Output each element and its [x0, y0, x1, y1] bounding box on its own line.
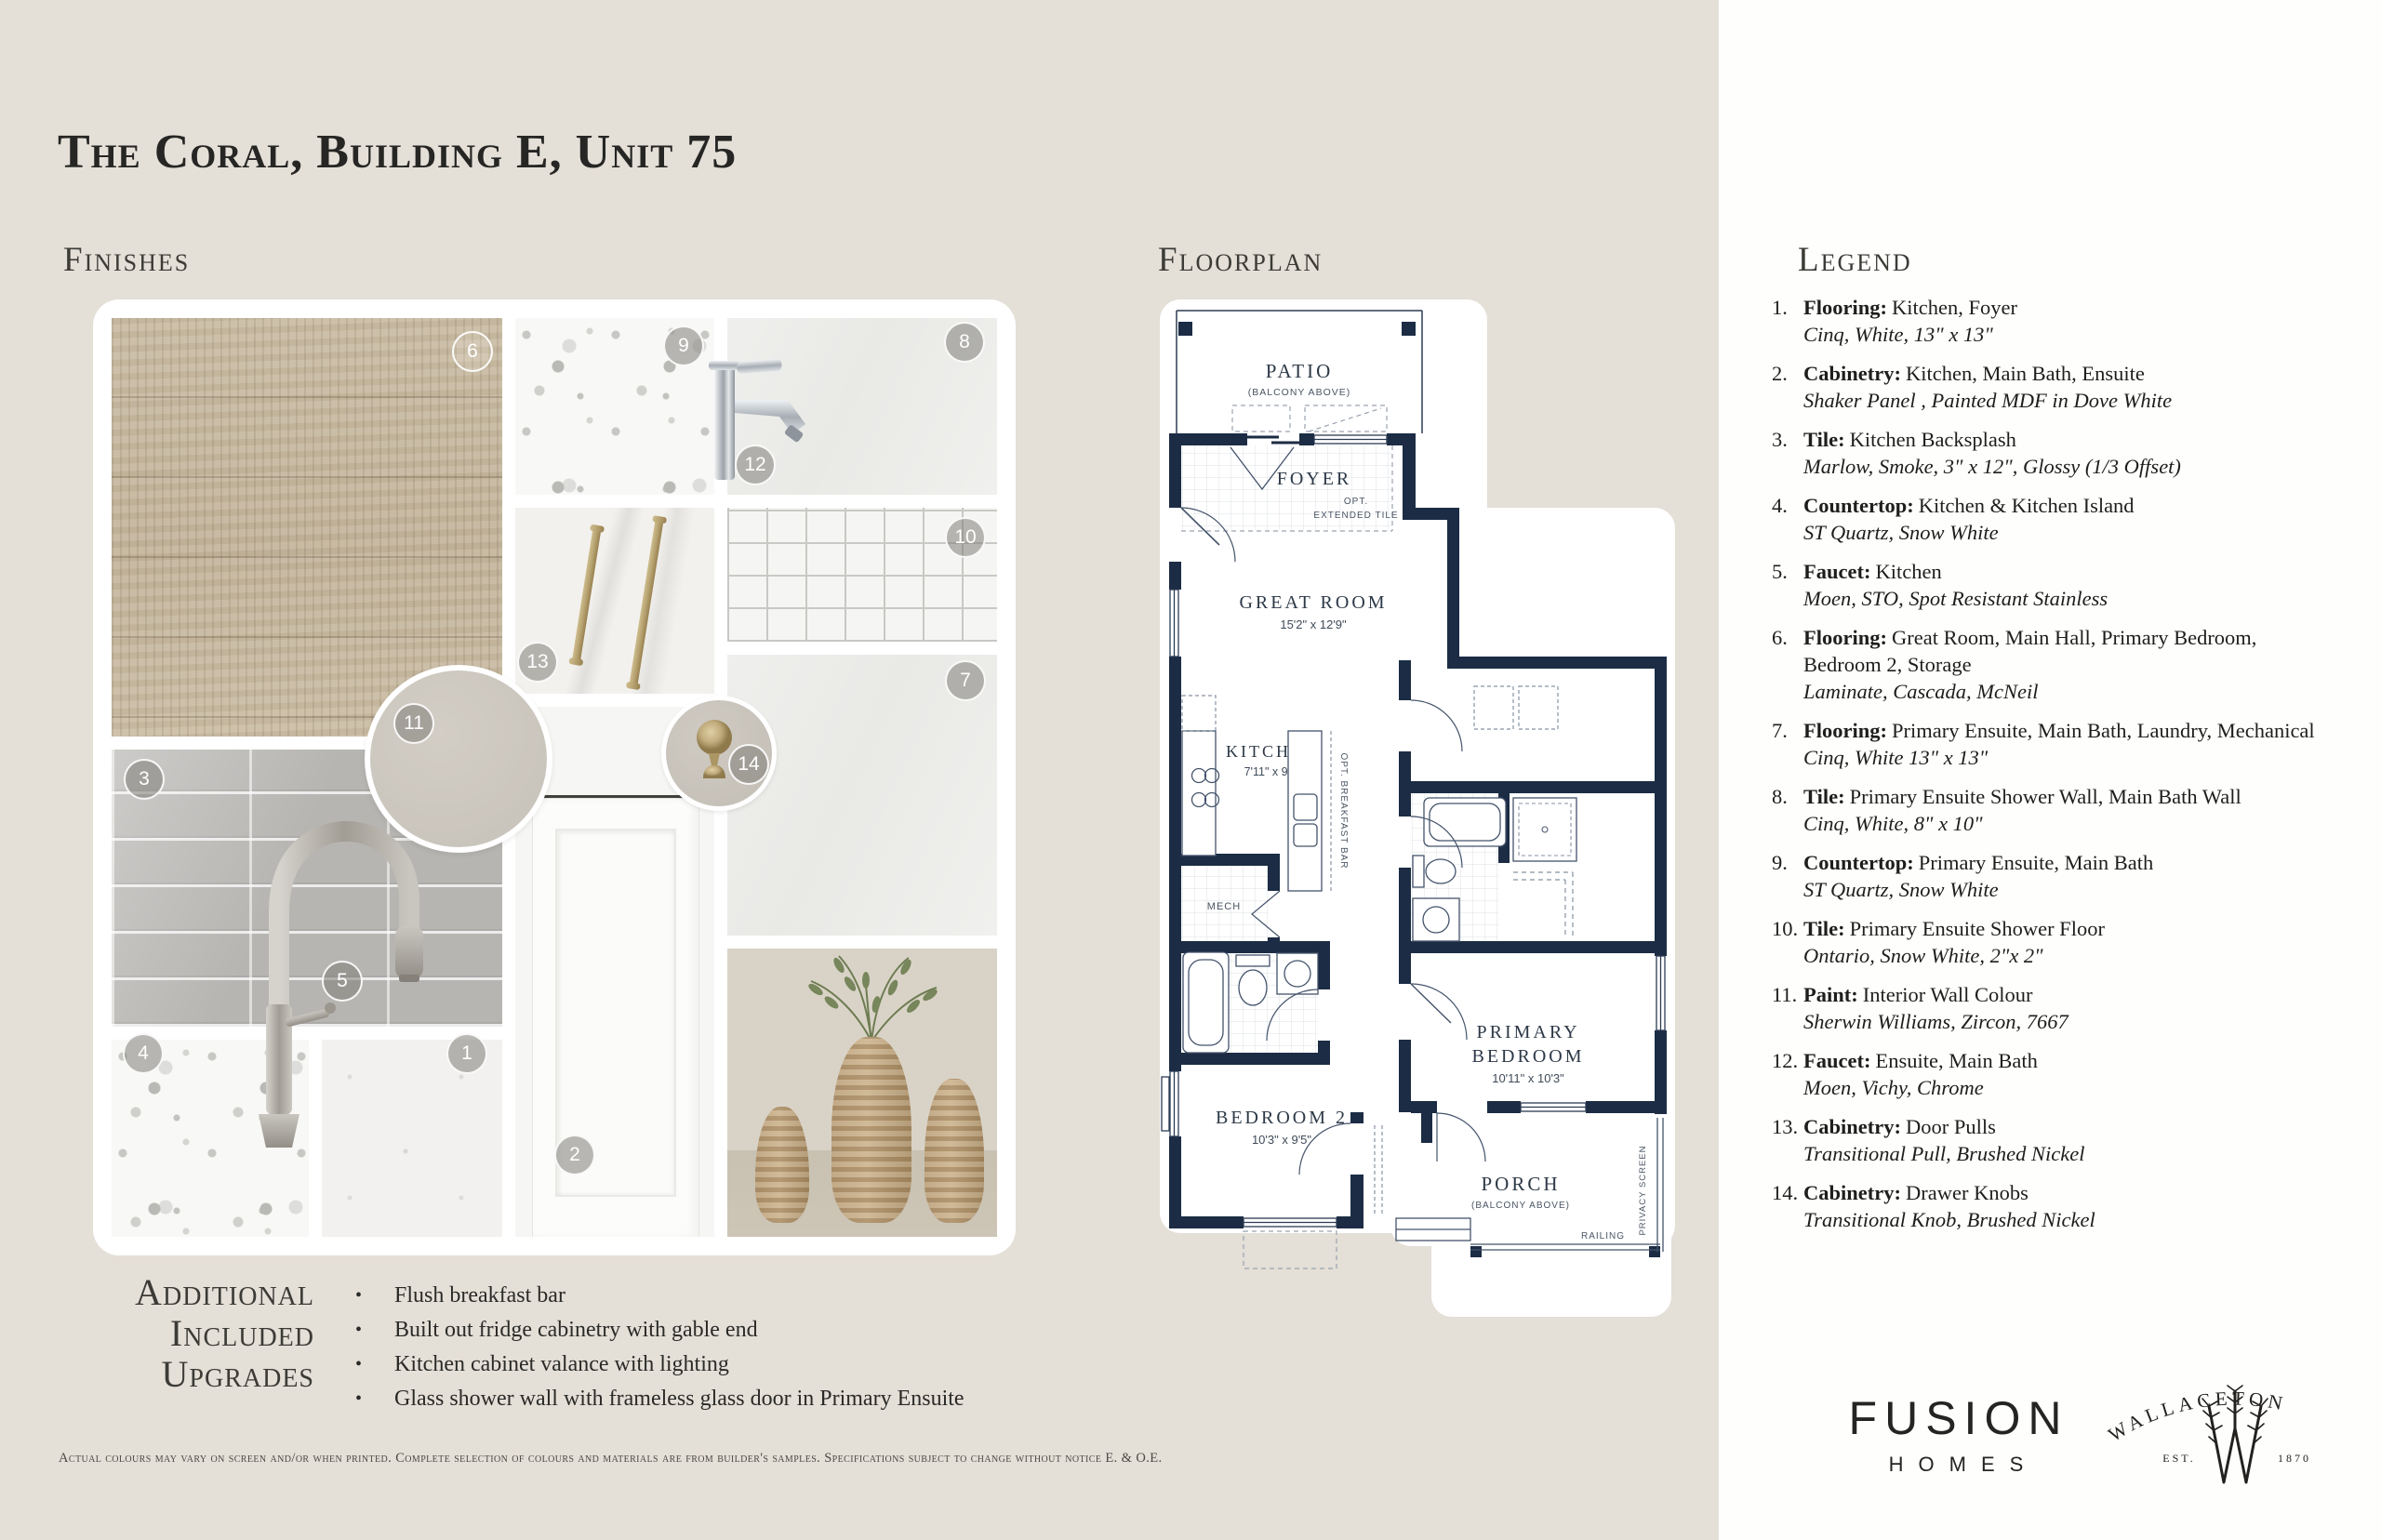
legend-text: Door Pulls	[1906, 1115, 1996, 1138]
legend-spec: Transitional Knob, Brushed Nickel	[1803, 1206, 2339, 1233]
vase-medium	[924, 1079, 984, 1223]
opt-tile-label2: EXTENDED TILE	[1313, 511, 1398, 521]
legend-label: Tile:	[1803, 917, 1845, 940]
legend-item: 7.Flooring:Primary Ensuite, Main Bath, L…	[1772, 717, 2339, 771]
porch-sublabel: (BALCONY ABOVE)	[1471, 1201, 1570, 1211]
legend-text: Kitchen, Main Bath, Ensuite	[1906, 362, 2145, 385]
primary-bedroom-label2: BEDROOM	[1471, 1046, 1584, 1067]
legend-spec: Sherwin Williams, Zircon, 7667	[1803, 1008, 2339, 1035]
legend-text: Drawer Knobs	[1906, 1181, 2029, 1204]
legend-spec: Cinq, White, 13" x 13"	[1803, 321, 2339, 348]
badge-number: 13	[526, 651, 548, 673]
legend-label: Flooring:	[1803, 626, 1887, 649]
wallaceton-logo: WALLACETON EST. 1870	[2097, 1332, 2372, 1504]
breakfast-bar-label: OPT. BREAKFAST BAR	[1338, 752, 1349, 869]
upgrades-heading-line: Included	[56, 1313, 314, 1354]
legend-item: 2.Cabinetry:Kitchen, Main Bath, EnsuiteS…	[1772, 360, 2339, 414]
legend-item: 4.Countertop:Kitchen & Kitchen IslandST …	[1772, 492, 2339, 546]
decor-vases-photo	[727, 949, 997, 1237]
finish-badge-icon: 8	[944, 322, 985, 363]
legend-number: 8.	[1772, 783, 1803, 837]
upgrade-item: •Kitchen cabinet valance with lighting	[355, 1350, 1006, 1378]
badge-number: 5	[337, 970, 348, 992]
badge-number: 3	[139, 768, 150, 790]
legend-spec: Ontario, Snow White, 2"x 2"	[1803, 942, 2339, 969]
page-title: The Coral, Building E, Unit 75	[58, 125, 737, 179]
legend-heading: Legend	[1798, 240, 1912, 280]
legend-spec: Transitional Pull, Brushed Nickel	[1803, 1140, 2339, 1167]
upgrades-heading-line: Additional	[56, 1272, 314, 1313]
primary-bedroom-label1: PRIMARY	[1476, 1022, 1579, 1042]
bullet-icon: •	[355, 1281, 394, 1309]
legend-item: 10.Tile:Primary Ensuite Shower FloorOnta…	[1772, 915, 2339, 969]
finish-badge-icon: 9	[663, 325, 704, 366]
finish-badge-icon: 13	[517, 642, 558, 683]
finishes-heading: Finishes	[63, 240, 190, 280]
legend-text: Kitchen	[1875, 560, 1941, 583]
legend-number: 10.	[1772, 915, 1803, 969]
finish-badge-icon: 12	[735, 445, 776, 485]
upgrades-heading-line: Upgrades	[56, 1354, 314, 1395]
legend-text: Interior Wall Colour	[1863, 983, 2033, 1006]
legend-number: 1.	[1772, 294, 1803, 348]
legend-text: Primary Ensuite Shower Floor	[1850, 917, 2105, 940]
legend-text: Kitchen & Kitchen Island	[1919, 494, 2135, 517]
legend-item: 11.Paint:Interior Wall ColourSherwin Wil…	[1772, 981, 2339, 1035]
legend-item: 6.Flooring:Great Room, Main Hall, Primar…	[1772, 624, 2339, 705]
upgrade-text: Glass shower wall with frameless glass d…	[394, 1385, 964, 1413]
legend-item: 5.Faucet:KitchenMoen, STO, Spot Resistan…	[1772, 558, 2339, 612]
badge-number: 14	[738, 753, 759, 776]
legend-label: Paint:	[1803, 983, 1858, 1006]
upgrade-text: Flush breakfast bar	[394, 1281, 565, 1309]
finish-badge-icon: 2	[554, 1135, 595, 1175]
bedroom2-label: BEDROOM 2	[1216, 1108, 1348, 1128]
legend-text: Primary Ensuite, Main Bath	[1919, 851, 2153, 874]
upgrade-item: •Built out fridge cabinetry with gable e…	[355, 1316, 1006, 1344]
legend-number: 5.	[1772, 558, 1803, 612]
finish-badge-icon: 5	[322, 961, 363, 1002]
badge-number: 6	[467, 340, 478, 363]
legend-item: 14.Cabinetry:Drawer KnobsTransitional Kn…	[1772, 1179, 2339, 1233]
legend-spec: ST Quartz, Snow White	[1803, 519, 2339, 546]
badge-number: 2	[569, 1144, 580, 1166]
bullet-icon: •	[355, 1316, 394, 1344]
legend-text: Kitchen Backsplash	[1850, 428, 2016, 451]
upgrades-list: •Flush breakfast bar •Built out fridge c…	[355, 1281, 1006, 1419]
upgrade-item: •Glass shower wall with frameless glass …	[355, 1385, 1006, 1413]
legend-label: Flooring:	[1803, 719, 1887, 742]
finish-badge-icon: 14	[728, 744, 769, 785]
legend-spec: ST Quartz, Snow White	[1803, 876, 2339, 903]
bullet-icon: •	[355, 1350, 394, 1378]
fusion-wordmark: FUSION	[1840, 1391, 2078, 1445]
legend-number: 9.	[1772, 849, 1803, 903]
legend-label: Cabinetry:	[1803, 362, 1901, 385]
floorplan-drawing: PATIO (BALCONY ABOVE)	[1158, 296, 1688, 1319]
upgrades-heading: Additional Included Upgrades	[56, 1272, 314, 1395]
legend-label: Faucet:	[1803, 560, 1870, 583]
foyer-label: FOYER	[1277, 469, 1352, 489]
legend-text: Primary Ensuite Shower Wall, Main Bath W…	[1850, 785, 2241, 808]
finish-badge-icon: 1	[446, 1033, 487, 1074]
legend-item: 8.Tile:Primary Ensuite Shower Wall, Main…	[1772, 783, 2339, 837]
shaker-door	[532, 798, 699, 1237]
badge-number: 7	[960, 670, 971, 692]
bedroom2-dim: 10'3" x 9'5"	[1252, 1133, 1311, 1147]
upgrade-item: •Flush breakfast bar	[355, 1281, 1006, 1309]
opt-tile-label1: OPT.	[1344, 497, 1368, 507]
bullet-icon: •	[355, 1385, 394, 1413]
legend-label: Tile:	[1803, 785, 1845, 808]
legend-spec: Laminate, Cascada, McNeil	[1803, 678, 2339, 705]
legend-text: Kitchen, Foyer	[1892, 296, 2017, 319]
badge-number: 11	[404, 712, 424, 735]
legend-spec: Cinq, White 13" x 13"	[1803, 744, 2339, 771]
legend-item: 3.Tile:Kitchen BacksplashMarlow, Smoke, …	[1772, 426, 2339, 480]
finish-badge-icon: 7	[945, 660, 986, 701]
legend-label: Faucet:	[1803, 1049, 1870, 1072]
finish-badge-icon: 3	[124, 759, 165, 800]
legend-number: 4.	[1772, 492, 1803, 546]
legend-spec: Cinq, White, 8" x 10"	[1803, 810, 2339, 837]
floorplan-heading: Floorplan	[1158, 240, 1323, 280]
badge-number: 4	[138, 1042, 149, 1065]
finish-badge-icon: 6	[452, 331, 493, 372]
legend-label: Cabinetry:	[1803, 1181, 1901, 1204]
privacy-screen-label: PRIVACY SCREEN	[1638, 1145, 1648, 1235]
legend-number: 3.	[1772, 426, 1803, 480]
legend-number: 6.	[1772, 624, 1803, 705]
legend-text: Ensuite, Main Bath	[1875, 1049, 2037, 1072]
porch-label: PORCH	[1481, 1173, 1560, 1195]
legend-label: Countertop:	[1803, 494, 1914, 517]
homes-wordmark: HOMES	[1840, 1453, 2078, 1477]
upgrade-text: Kitchen cabinet valance with lighting	[394, 1350, 729, 1378]
legend-text: Primary Ensuite, Main Bath, Laundry, Mec…	[1892, 719, 2315, 742]
legend-number: 14.	[1772, 1179, 1803, 1233]
legend-number: 11.	[1772, 981, 1803, 1035]
disclaimer-text: Actual colours may vary on screen and/or…	[59, 1451, 1510, 1467]
legend-label: Flooring:	[1803, 296, 1887, 319]
great-room-dim: 15'2" x 12'9"	[1280, 617, 1347, 631]
legend-item: 12.Faucet:Ensuite, Main BathMoen, Vichy,…	[1772, 1047, 2339, 1101]
badge-number: 8	[959, 331, 970, 353]
legend-spec: Moen, Vichy, Chrome	[1803, 1074, 2339, 1101]
badge-number: 10	[954, 526, 976, 549]
great-room-label: GREAT ROOM	[1239, 592, 1387, 613]
railing-label: RAILING	[1581, 1231, 1625, 1241]
year-text: 1870	[2278, 1452, 2311, 1465]
legend-item: 1.Flooring:Kitchen, FoyerCinq, White, 13…	[1772, 294, 2339, 348]
finish-badge-icon: 11	[393, 703, 434, 744]
legend-number: 12.	[1772, 1047, 1803, 1101]
legend-spec: Moen, STO, Spot Resistant Stainless	[1803, 585, 2339, 612]
patio-sublabel: (BALCONY ABOVE)	[1248, 387, 1351, 398]
legend-number: 2.	[1772, 360, 1803, 414]
legend-spec: Shaker Panel , Painted MDF in Dove White	[1803, 387, 2339, 414]
mech-label: MECH	[1207, 901, 1241, 912]
vase-small	[755, 1107, 809, 1223]
legend-item: 13.Cabinetry:Door PullsTransitional Pull…	[1772, 1113, 2339, 1167]
patio-label: PATIO	[1266, 360, 1334, 382]
legend-list: 1.Flooring:Kitchen, FoyerCinq, White, 13…	[1772, 294, 2339, 1245]
est-text: EST.	[2162, 1452, 2195, 1465]
badge-number: 9	[678, 335, 689, 357]
primary-bedroom-dim: 10'11" x 10'3"	[1492, 1071, 1564, 1085]
badge-number: 12	[744, 454, 765, 476]
legend-item: 9.Countertop:Primary Ensuite, Main BathS…	[1772, 849, 2339, 903]
badge-number: 1	[461, 1042, 472, 1065]
legend-number: 7.	[1772, 717, 1803, 771]
finish-badge-icon: 4	[123, 1033, 164, 1074]
legend-label: Countertop:	[1803, 851, 1914, 874]
upgrade-text: Built out fridge cabinetry with gable en…	[394, 1316, 758, 1344]
finish-badge-icon: 10	[945, 517, 986, 558]
legend-label: Tile:	[1803, 428, 1845, 451]
legend-label: Cabinetry:	[1803, 1115, 1901, 1138]
legend-spec: Marlow, Smoke, 3" x 12", Glossy (1/3 Off…	[1803, 453, 2339, 480]
legend-number: 13.	[1772, 1113, 1803, 1167]
vase-large	[831, 1037, 911, 1223]
fusion-homes-logo: FUSION HOMES	[1840, 1391, 2078, 1477]
